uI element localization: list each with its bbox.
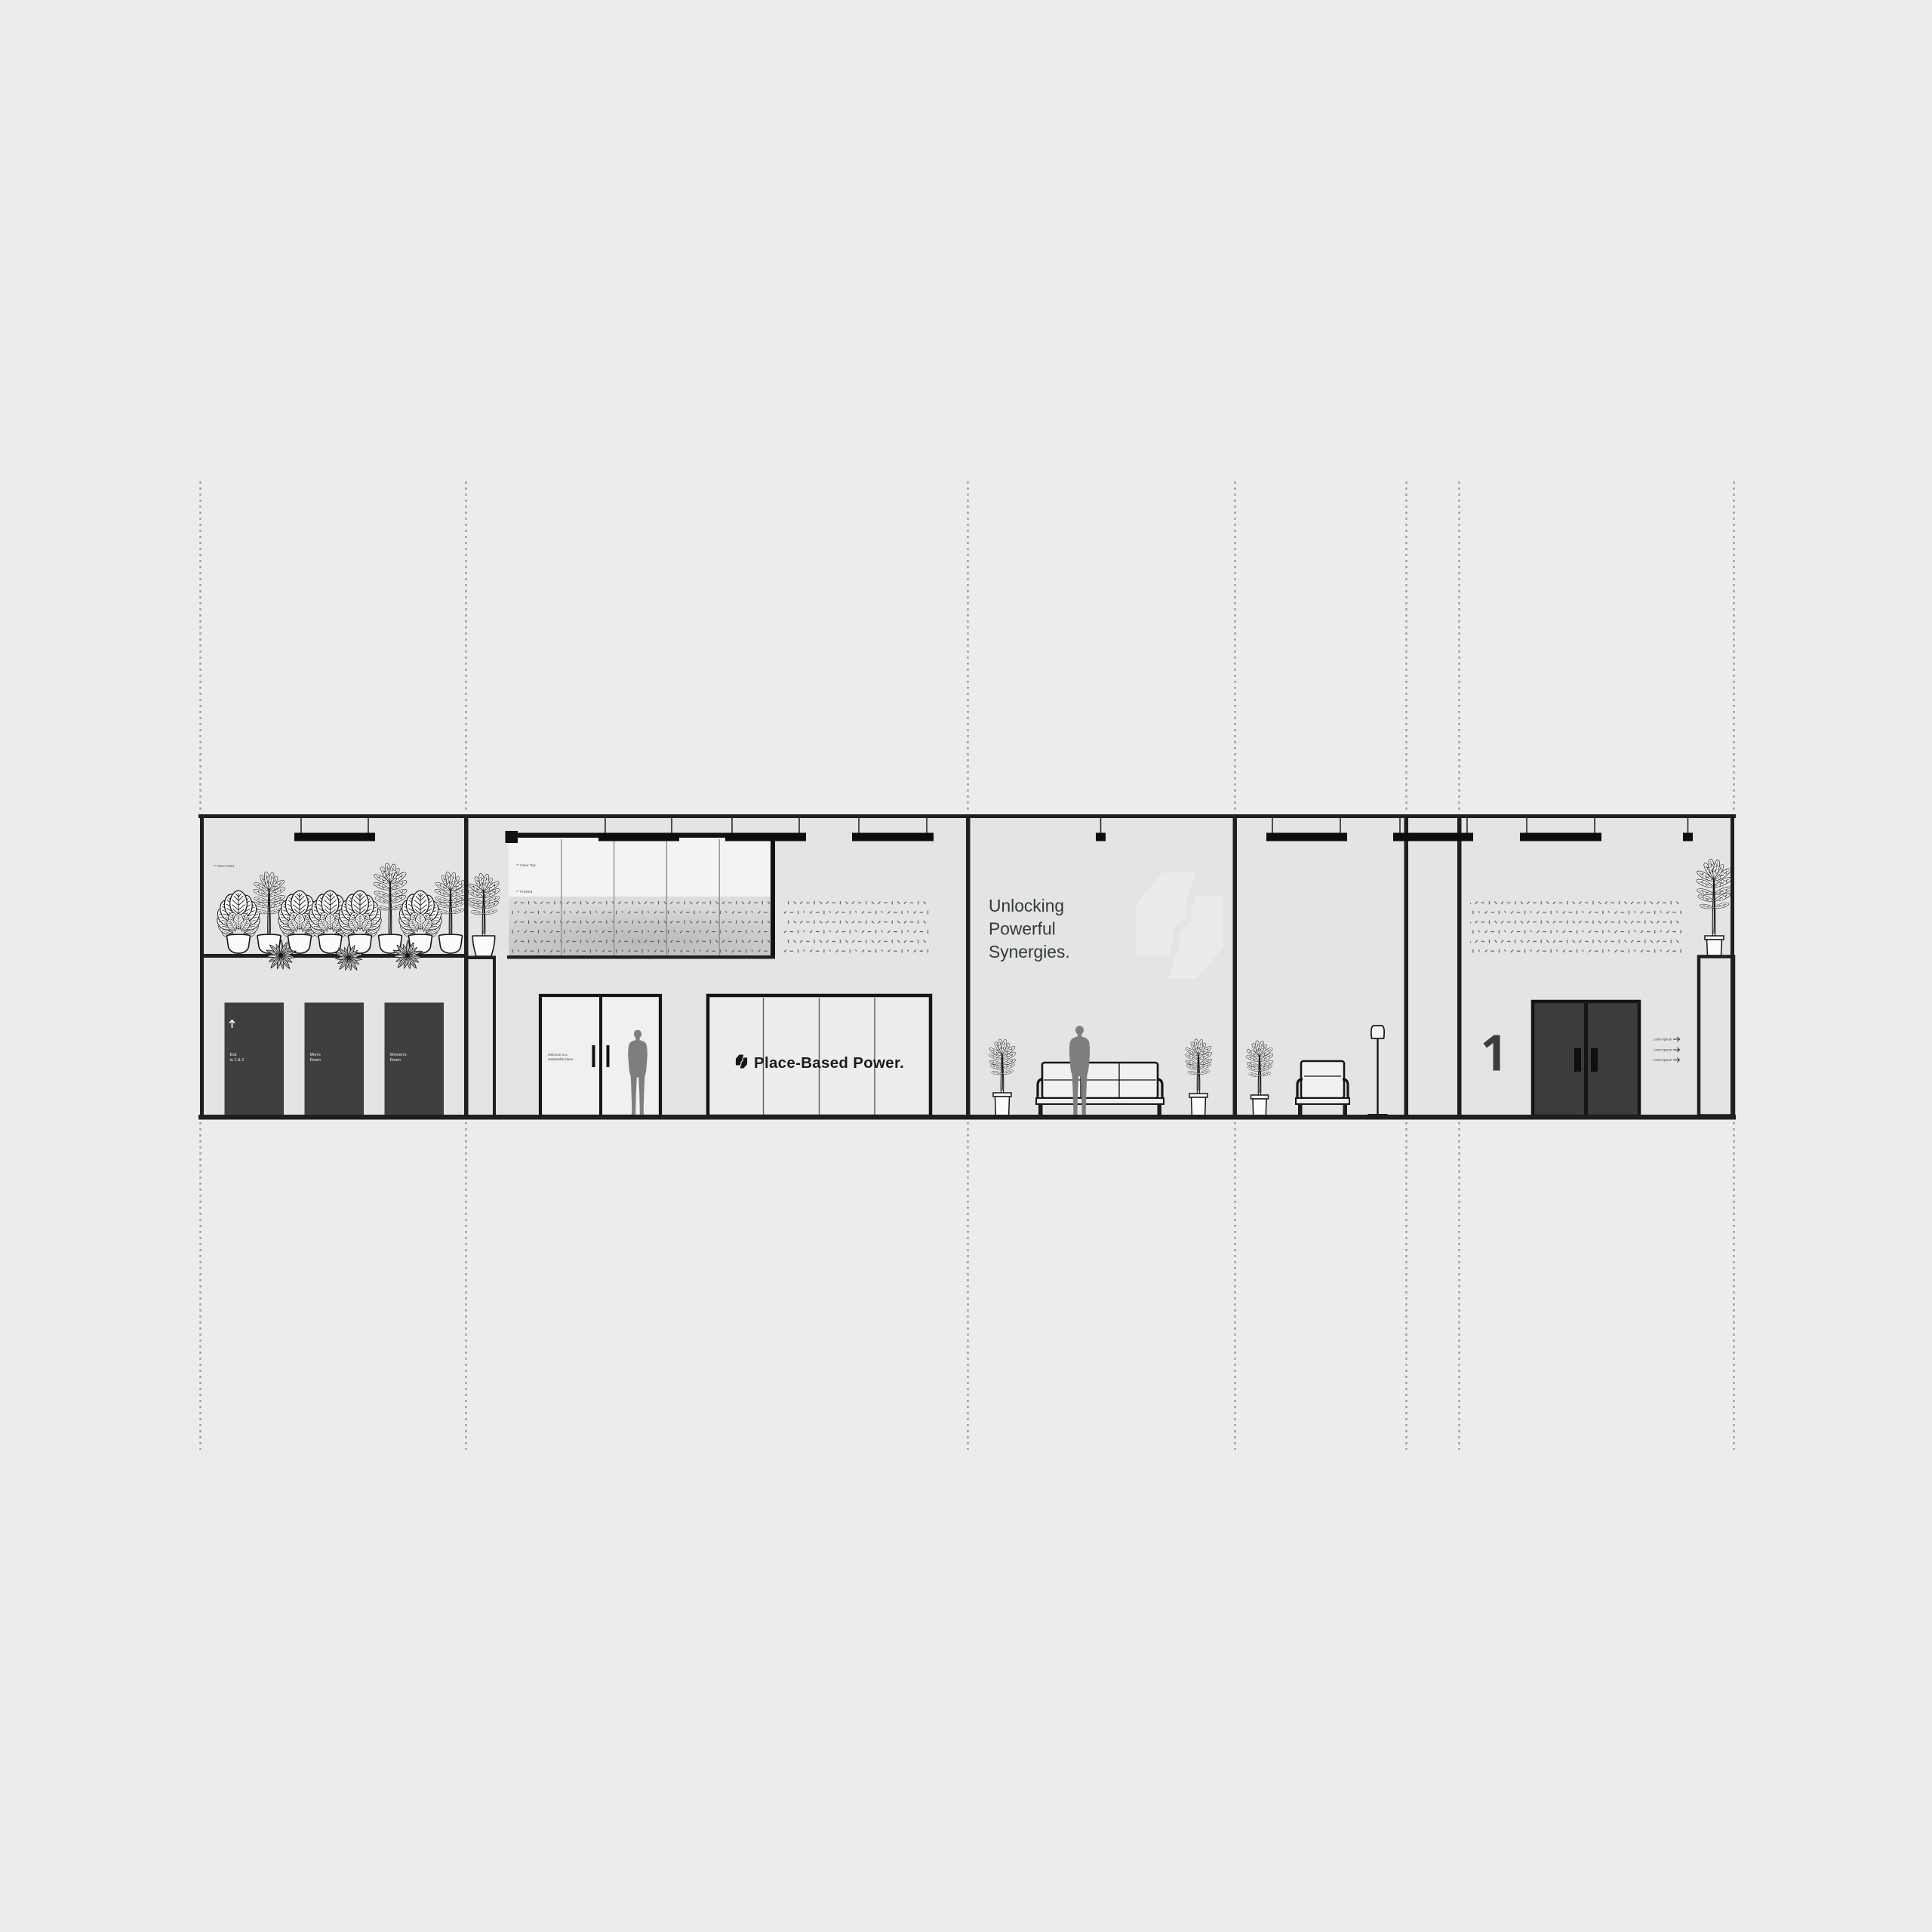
svg-text:Place-Based Power.: Place-Based Power.: [754, 1054, 904, 1072]
svg-text:Powerful: Powerful: [989, 919, 1056, 939]
svg-text:Women's: Women's: [390, 1053, 408, 1057]
svg-text:sustainable future.: sustainable future.: [548, 1057, 574, 1061]
svg-text:** Frosted: ** Frosted: [516, 890, 533, 894]
svg-text:to 1 & 2: to 1 & 2: [230, 1058, 245, 1063]
svg-text:Welcome to a: Welcome to a: [548, 1053, 568, 1057]
svg-text:Synergies.: Synergies.: [989, 942, 1070, 961]
svg-text:Lorem ipsum: Lorem ipsum: [1654, 1058, 1672, 1062]
svg-text:** New Paint: ** New Paint: [214, 864, 235, 869]
svg-text:** Clear Top: ** Clear Top: [516, 863, 536, 868]
svg-text:Room: Room: [390, 1058, 401, 1063]
svg-text:Lorem ipsum: Lorem ipsum: [1654, 1048, 1672, 1052]
svg-text:Unlocking: Unlocking: [989, 896, 1064, 915]
svg-text:Exit: Exit: [230, 1053, 237, 1057]
svg-text:Lorem ipsum: Lorem ipsum: [1654, 1038, 1672, 1041]
svg-text:Men's: Men's: [310, 1053, 321, 1057]
svg-text:Room: Room: [310, 1058, 321, 1063]
